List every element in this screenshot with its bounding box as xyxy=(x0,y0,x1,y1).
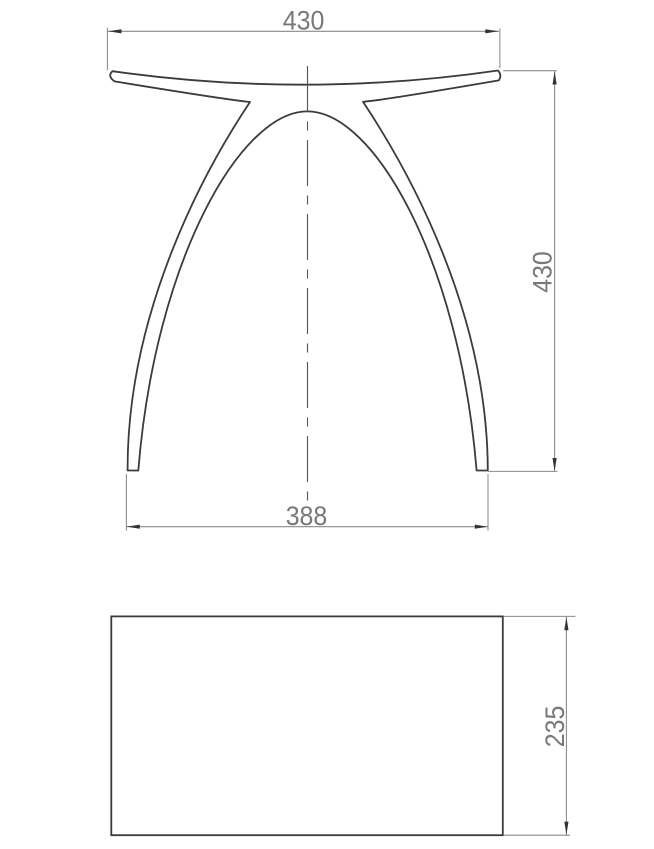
svg-text:235: 235 xyxy=(540,706,570,748)
svg-text:388: 388 xyxy=(286,501,328,531)
svg-text:430: 430 xyxy=(283,6,325,36)
svg-text:430: 430 xyxy=(527,251,557,293)
